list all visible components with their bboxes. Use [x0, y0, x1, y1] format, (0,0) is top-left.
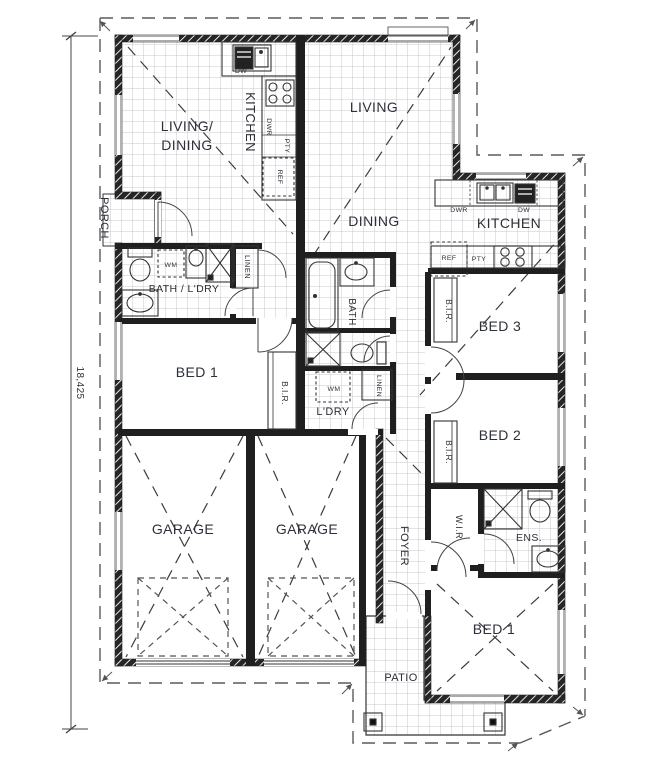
label-kitchen-u2: KITCHEN [477, 215, 541, 231]
label-pty-u1: PTY [283, 139, 290, 153]
label-garage-u2: GARAGE [276, 521, 338, 537]
label-dw-u2: DW [518, 207, 530, 214]
label-ens: ENS. [516, 532, 542, 544]
label-linen-u2: LINEN [375, 375, 382, 397]
label-bir-bed3: B.I.R. [444, 299, 454, 323]
label-dwr-u2: DWR [450, 207, 467, 214]
label-linen-u1: LINEN [243, 255, 252, 279]
label-pty-u2: PTY [472, 256, 486, 263]
label-ldry-u2: L'DRY [316, 406, 350, 418]
label-living-dining-2: DINING [161, 137, 212, 153]
label-dwr-u1: DWR [265, 118, 272, 135]
label-bath-ldry-u1: BATH / L'DRY [149, 283, 220, 295]
label-bed3: BED 3 [479, 318, 521, 334]
label-wir: W.I.R [454, 515, 464, 539]
label-dining-u2: DINING [348, 213, 399, 229]
label-wm-u2: WM [328, 386, 341, 393]
label-bed2: BED 2 [479, 427, 521, 443]
label-porch: PORCH [98, 197, 110, 239]
dishwasher-unit1 [235, 47, 253, 69]
dimension-value: 18,425 [74, 367, 85, 400]
label-living-dining-1: LIVING/ [161, 118, 214, 134]
label-kitchen-u1: KITCHEN [243, 92, 258, 152]
label-patio: PATIO [384, 672, 417, 684]
label-wm-u1: WM [165, 262, 178, 269]
label-bir-u1: B.I.R. [280, 381, 290, 405]
label-foyer: FOYER [398, 526, 410, 566]
label-living-u2: LIVING [350, 99, 398, 115]
label-bed1-u1: BED 1 [176, 364, 218, 380]
label-bath-u2: BATH [346, 298, 357, 326]
label-ref-u2: REF [442, 255, 457, 262]
label-garage-u1: GARAGE [152, 521, 214, 537]
label-bir-bed2: B.I.R. [444, 440, 454, 464]
label-ref-u1: REF [276, 170, 283, 185]
floor-plan: 18,425 [0, 0, 655, 759]
label-dw-u1: DW [235, 68, 247, 75]
label-bed1-u2: BED 1 [473, 621, 515, 637]
floor-plan-canvas: 18,425 [0, 0, 655, 759]
